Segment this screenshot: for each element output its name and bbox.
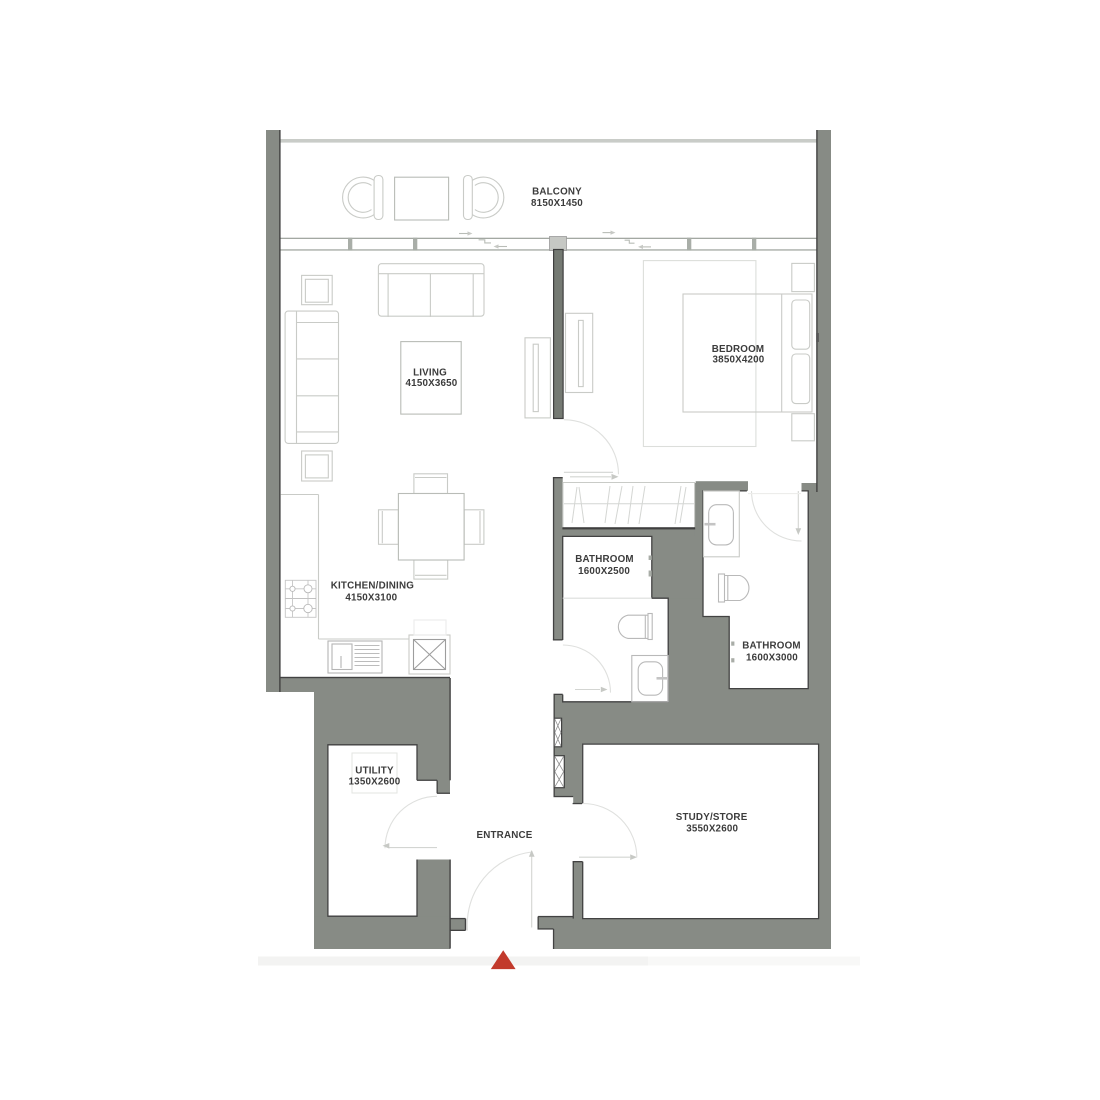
svg-text:4150X3100: 4150X3100 bbox=[345, 593, 397, 604]
svg-text:8150X1450: 8150X1450 bbox=[531, 198, 583, 209]
svg-text:3550X2600: 3550X2600 bbox=[686, 824, 738, 835]
svg-text:BATHROOM: BATHROOM bbox=[575, 554, 634, 565]
svg-text:4150X3650: 4150X3650 bbox=[406, 378, 458, 389]
svg-text:1600X3000: 1600X3000 bbox=[746, 652, 798, 663]
svg-text:1350X2600: 1350X2600 bbox=[349, 777, 401, 788]
svg-text:UTILITY: UTILITY bbox=[355, 766, 394, 777]
svg-text:BATHROOM: BATHROOM bbox=[742, 641, 801, 652]
svg-text:BALCONY: BALCONY bbox=[532, 187, 582, 198]
svg-text:ENTRANCE: ENTRANCE bbox=[476, 830, 532, 841]
svg-text:1600X2500: 1600X2500 bbox=[578, 566, 630, 577]
svg-text:KITCHEN/DINING: KITCHEN/DINING bbox=[331, 581, 415, 592]
svg-text:LIVING: LIVING bbox=[413, 368, 447, 379]
svg-text:STUDY/STORE: STUDY/STORE bbox=[676, 812, 748, 823]
svg-text:BEDROOM: BEDROOM bbox=[712, 344, 765, 355]
svg-text:3850X4200: 3850X4200 bbox=[713, 355, 765, 366]
